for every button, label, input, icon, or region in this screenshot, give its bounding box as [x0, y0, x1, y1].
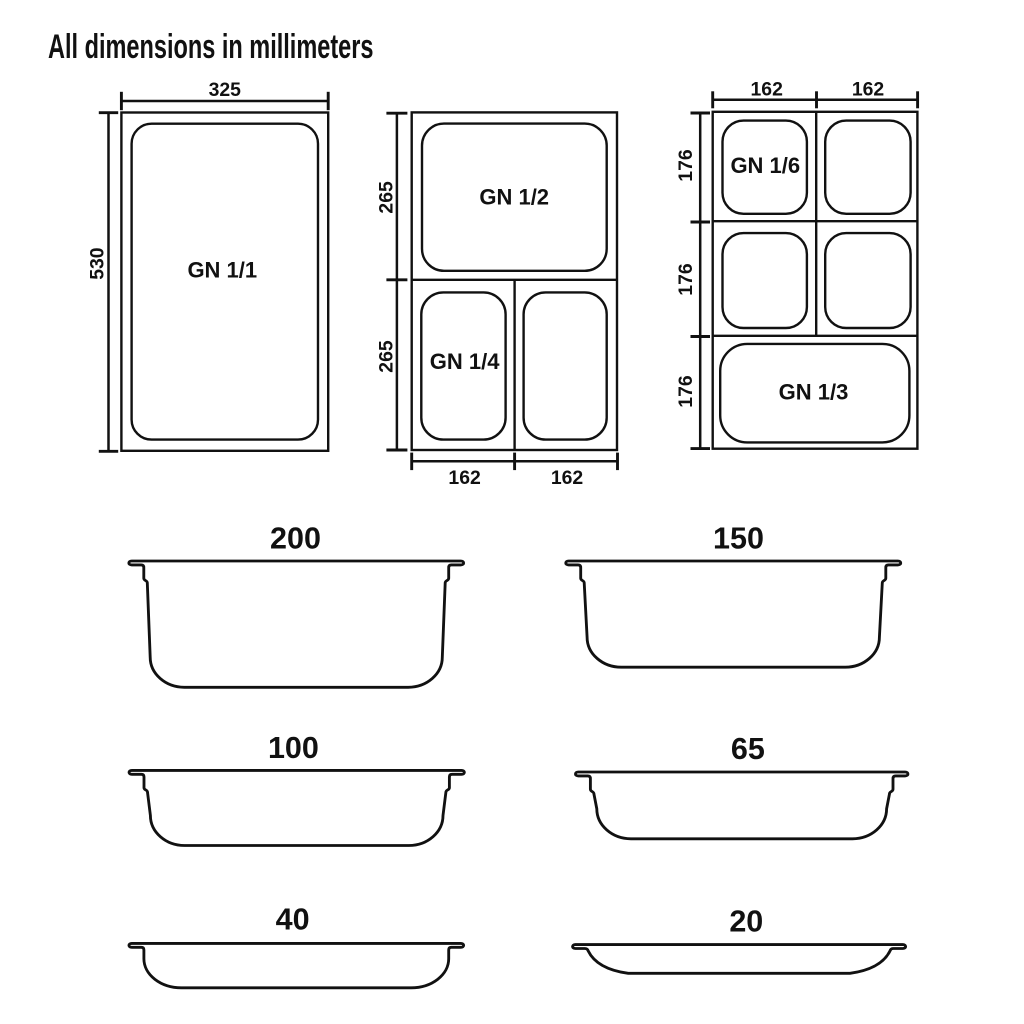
svg-text:530: 530	[86, 247, 108, 279]
svg-text:162: 162	[751, 79, 783, 101]
svg-text:20: 20	[729, 905, 763, 939]
svg-text:40: 40	[276, 902, 310, 936]
svg-text:176: 176	[675, 149, 697, 182]
svg-text:162: 162	[852, 79, 884, 101]
svg-text:GN 1/6: GN 1/6	[730, 153, 800, 178]
svg-text:162: 162	[551, 467, 583, 489]
svg-text:All dimensions in millimeters: All dimensions in millimeters	[48, 28, 374, 66]
svg-text:100: 100	[268, 731, 319, 765]
svg-text:162: 162	[448, 467, 480, 489]
svg-text:150: 150	[713, 522, 764, 556]
svg-text:325: 325	[209, 79, 242, 101]
svg-text:GN 1/2: GN 1/2	[479, 185, 549, 210]
svg-text:265: 265	[376, 181, 398, 214]
svg-text:176: 176	[675, 263, 697, 296]
svg-text:265: 265	[376, 340, 398, 373]
svg-text:GN 1/1: GN 1/1	[187, 257, 257, 282]
svg-text:200: 200	[270, 522, 321, 556]
svg-text:65: 65	[731, 732, 765, 766]
svg-text:GN 1/4: GN 1/4	[430, 349, 500, 374]
svg-text:176: 176	[675, 375, 697, 408]
svg-text:GN 1/3: GN 1/3	[779, 380, 849, 405]
